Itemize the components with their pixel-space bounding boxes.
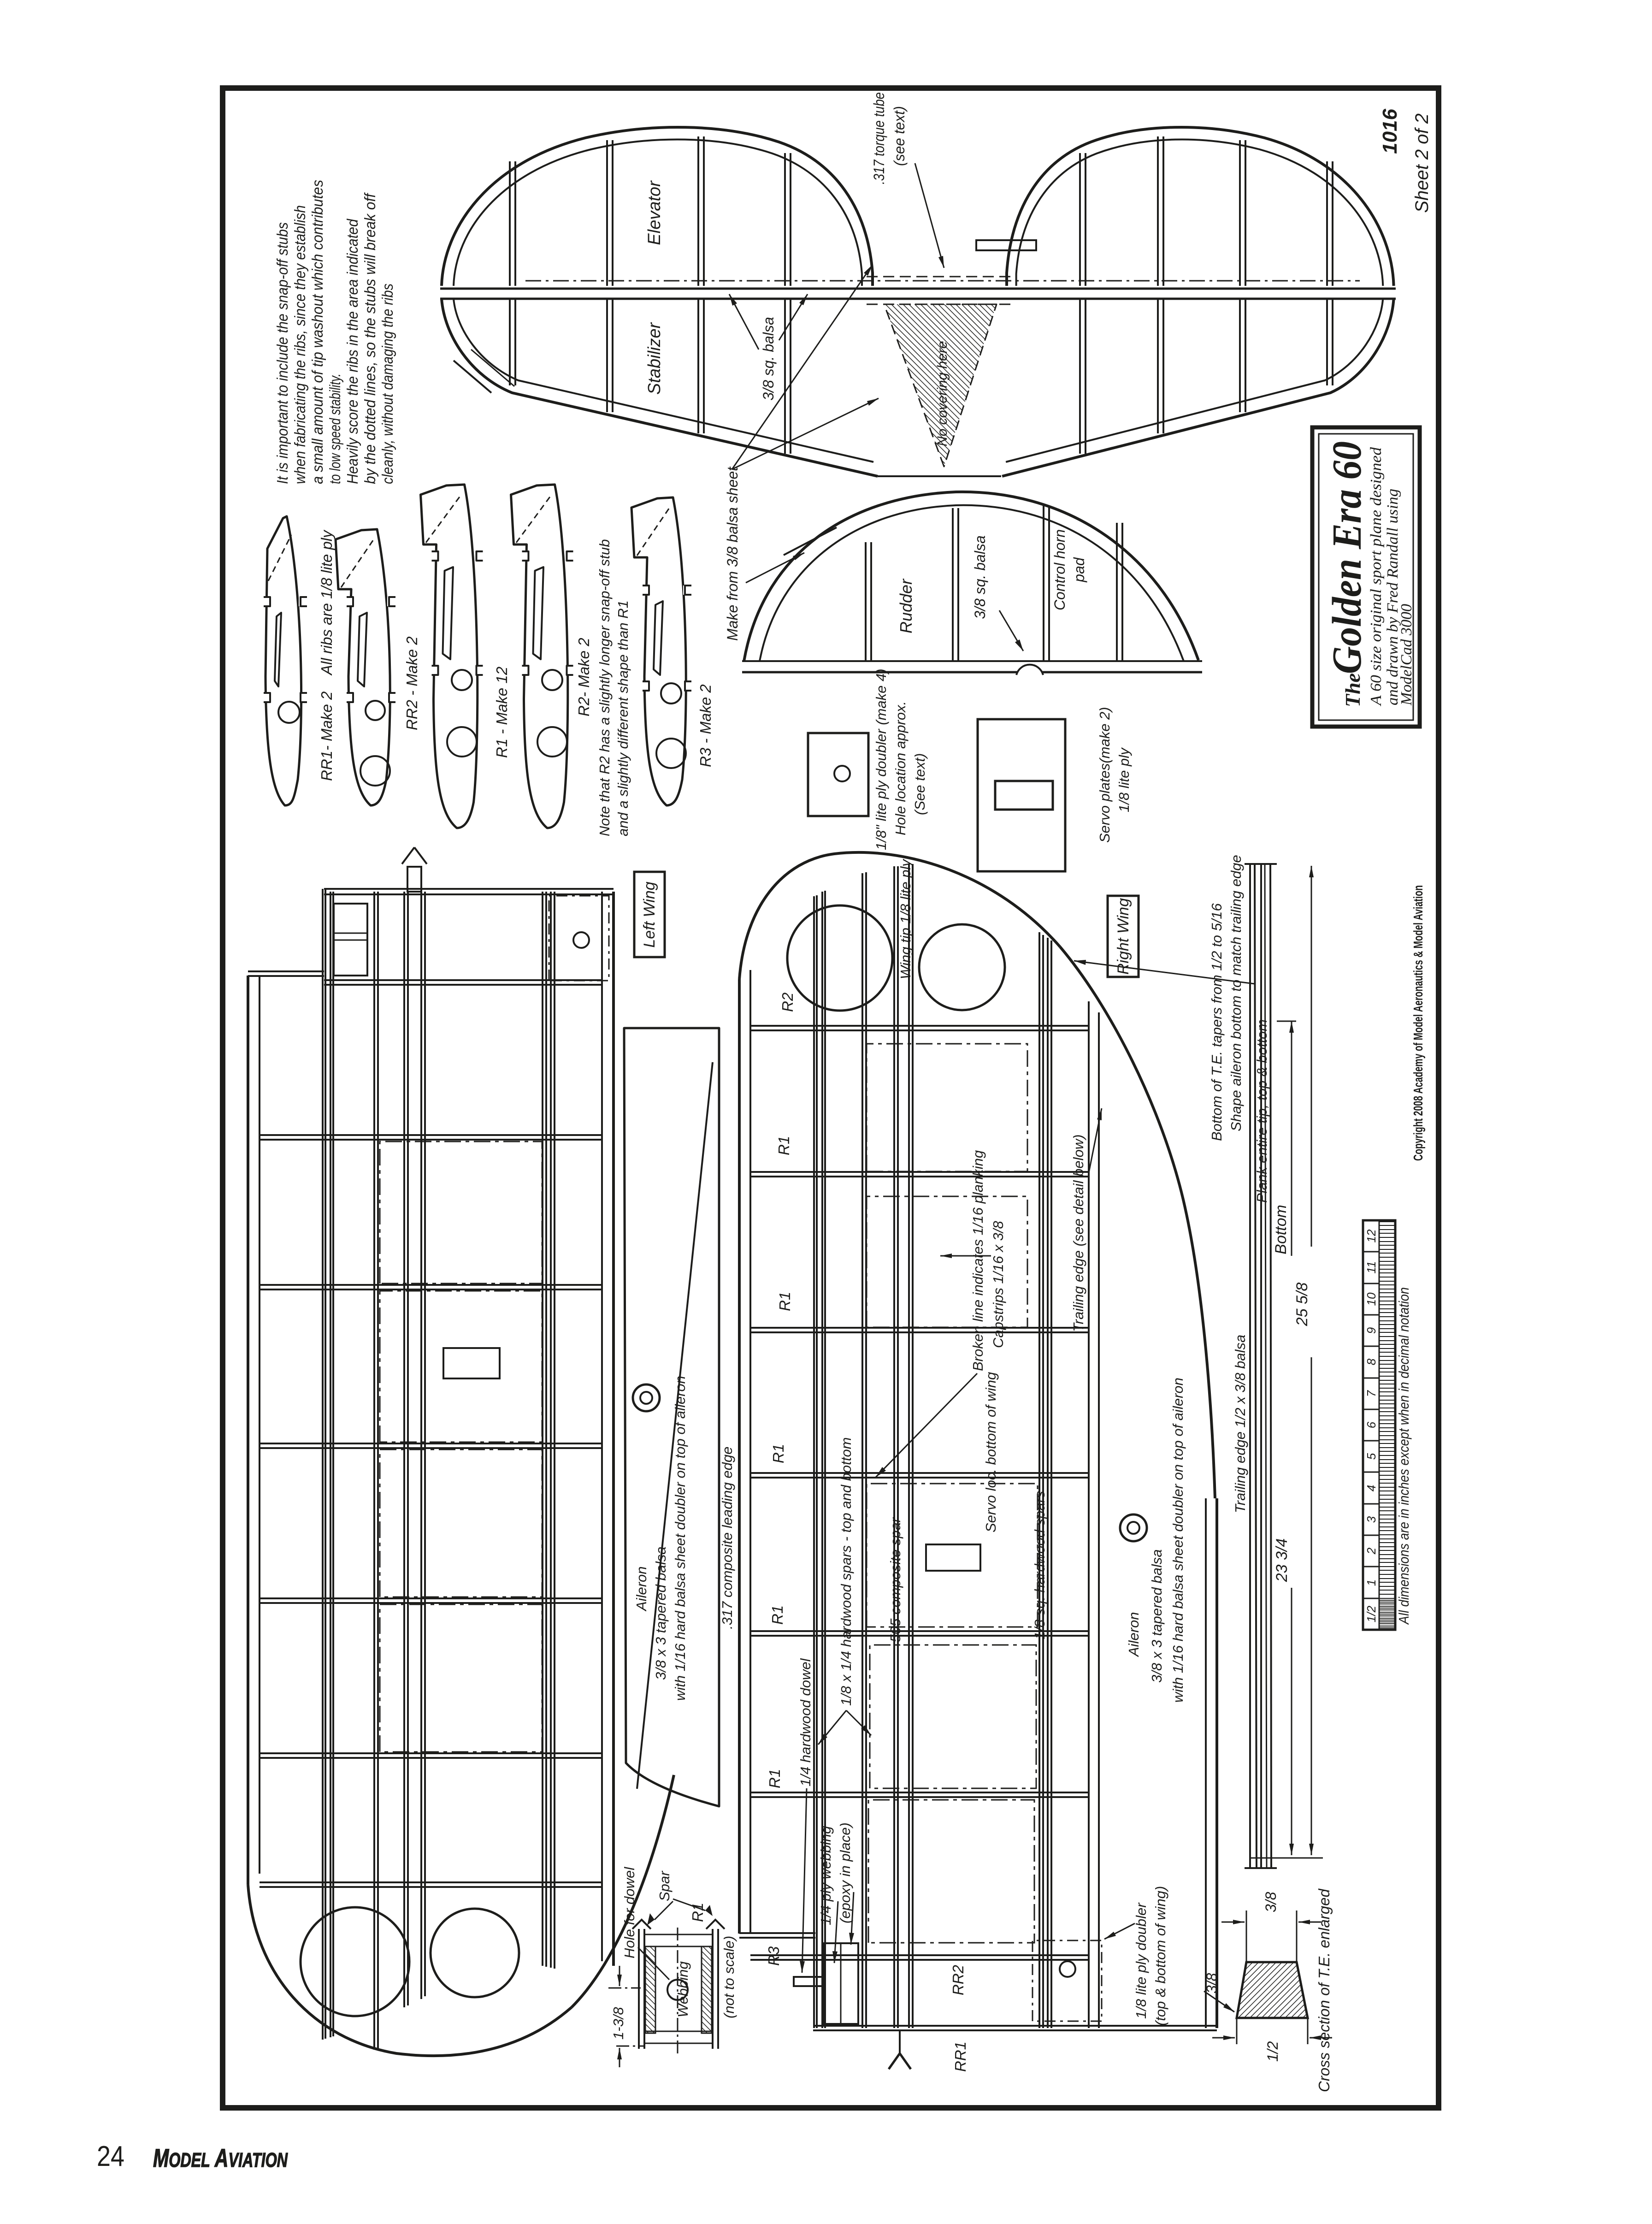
svg-text:Shape aileron bottom to match: Shape aileron bottom to match trailing e… — [1228, 855, 1244, 1131]
svg-text:.317 torque tube: .317 torque tube — [871, 92, 887, 184]
svg-text:4: 4 — [1364, 1485, 1378, 1491]
svg-text:Hole for dowel: Hole for dowel — [621, 1867, 637, 1958]
svg-text:All dimensions are in inches e: All dimensions are in inches except when… — [1396, 1287, 1412, 1625]
svg-text:(See text): (See text) — [912, 753, 928, 815]
svg-text:when fabricating the ribs, sin: when fabricating the ribs, since they es… — [291, 205, 308, 484]
svg-text:1: 1 — [1364, 1579, 1378, 1586]
svg-text:1/8 lite ply doubler: 1/8 lite ply doubler — [1133, 1902, 1149, 2019]
svg-text:by the dotted lines, so the st: by the dotted lines, so the stubs will b… — [361, 192, 378, 484]
svg-text:R2: R2 — [779, 993, 796, 1012]
svg-text:Left Wing: Left Wing — [641, 881, 658, 947]
svg-text:A 60 size original sport plane: A 60 size original sport plane designed — [1368, 447, 1385, 706]
svg-text:R1: R1 — [775, 1136, 792, 1155]
svg-text:R3 - Make 2: R3 - Make 2 — [697, 684, 714, 767]
svg-text:6: 6 — [1364, 1421, 1378, 1428]
svg-text:It is important to include the: It is important to include the snap-off … — [274, 222, 291, 484]
svg-text:Hole location approx.: Hole location approx. — [892, 701, 909, 835]
svg-text:R3: R3 — [765, 1946, 782, 1966]
svg-text:Sheet 2 of 2: Sheet 2 of 2 — [1412, 113, 1432, 213]
svg-text:Servo plates(make 2): Servo plates(make 2) — [1097, 707, 1113, 843]
svg-text:5: 5 — [1364, 1453, 1378, 1460]
svg-text:Servo loc. bottom of wing: Servo loc. bottom of wing — [983, 1372, 999, 1532]
svg-text:24: 24 — [97, 2141, 124, 2172]
svg-text:3/8: 3/8 — [1204, 1973, 1220, 1993]
svg-text:RR1: RR1 — [952, 2041, 969, 2072]
svg-text:Wing tip 1/8 lite ply: Wing tip 1/8 lite ply — [897, 858, 914, 979]
svg-text:All ribs are 1/8 lite ply: All ribs are 1/8 lite ply — [318, 529, 335, 676]
svg-text:The: The — [1341, 673, 1364, 707]
svg-text:10: 10 — [1364, 1292, 1378, 1306]
svg-text:25 5/8: 25 5/8 — [1293, 1283, 1311, 1327]
svg-text:Control horn: Control horn — [1051, 529, 1068, 610]
svg-text:with 1/16 hard balsa sheet dou: with 1/16 hard balsa sheet doubler on to… — [672, 1376, 688, 1701]
svg-text:a small amount of tip washout: a small amount of tip washout which cont… — [309, 180, 326, 484]
svg-text:1/8 x 1/4 hardwood spars - top: 1/8 x 1/4 hardwood spars - top and botto… — [838, 1437, 854, 1706]
svg-text:7: 7 — [1364, 1390, 1378, 1397]
svg-text:pad: pad — [1071, 557, 1087, 583]
svg-text:1/4 hardwood dowel: 1/4 hardwood dowel — [797, 1658, 814, 1786]
svg-text:9: 9 — [1364, 1327, 1378, 1334]
svg-text:Broken line indicates 1/16 pla: Broken line indicates 1/16 planking — [970, 1150, 986, 1371]
svg-text:8: 8 — [1364, 1358, 1378, 1365]
svg-text:23 3/4: 23 3/4 — [1273, 1538, 1291, 1583]
svg-text:Cross section of T.E. enlarged: Cross section of T.E. enlarged — [1316, 1888, 1333, 2092]
svg-text:Copyright 2008 Academy of Mode: Copyright 2008 Academy of Model Aeronaut… — [1411, 885, 1425, 1161]
svg-text:(not to scale): (not to scale) — [721, 1936, 737, 2018]
svg-text:3/8 x 3 tapered balsa: 3/8 x 3 tapered balsa — [653, 1546, 669, 1680]
svg-text:11: 11 — [1364, 1261, 1378, 1274]
svg-text:Aileron: Aileron — [1126, 1612, 1142, 1658]
svg-text:RR2 - Make 2: RR2 - Make 2 — [403, 636, 420, 730]
svg-text:1/8 sq. hardwood spars: 1/8 sq. hardwood spars — [1032, 1491, 1048, 1639]
svg-text:1016: 1016 — [1379, 108, 1401, 154]
svg-text:1/8 lite ply: 1/8 lite ply — [1116, 747, 1132, 812]
svg-text:1-3/8: 1-3/8 — [610, 2007, 626, 2040]
svg-text:Rudder: Rudder — [897, 578, 915, 633]
svg-text:Make from 3/8 balsa sheet: Make from 3/8 balsa sheet — [724, 467, 741, 641]
svg-text:ModelCad 3000: ModelCad 3000 — [1398, 604, 1415, 706]
svg-text:Heavily score the ribs in the: Heavily score the ribs in the area indic… — [344, 218, 361, 484]
svg-text:R1 - Make 12: R1 - Make 12 — [493, 667, 510, 758]
svg-text:.505 composite spar: .505 composite spar — [887, 1517, 903, 1646]
svg-text:Aileron: Aileron — [633, 1567, 649, 1612]
svg-text:and a slightly different shape: and a slightly different shape than R1 — [615, 600, 631, 836]
svg-text:Trailing edge 1/2 x 3/8 balsa: Trailing edge 1/2 x 3/8 balsa — [1232, 1335, 1248, 1513]
svg-text:3/8 sq. balsa: 3/8 sq. balsa — [760, 317, 777, 400]
svg-text:1/8" lite ply doubler (make 4): 1/8" lite ply doubler (make 4) — [873, 668, 889, 850]
svg-text:(epoxy in place): (epoxy in place) — [837, 1822, 853, 1923]
svg-text:Stabilizer: Stabilizer — [645, 322, 664, 395]
svg-text:R1: R1 — [769, 1605, 786, 1625]
svg-text:Bottom: Bottom — [1272, 1205, 1290, 1254]
svg-text:3/8: 3/8 — [1263, 1892, 1279, 1912]
svg-text:1/2: 1/2 — [1364, 1605, 1378, 1622]
svg-text:with 1/16 hard balsa sheet dou: with 1/16 hard balsa sheet doubler on to… — [1170, 1378, 1186, 1703]
svg-text:RR1- Make 2: RR1- Make 2 — [318, 692, 335, 781]
svg-text:Elevator: Elevator — [645, 180, 664, 245]
svg-text:Webbing: Webbing — [675, 1961, 691, 2017]
svg-text:Trailing edge (see detail belo: Trailing edge (see detail below) — [1070, 1135, 1086, 1332]
svg-text:3/8 x 3 tapered balsa: 3/8 x 3 tapered balsa — [1149, 1549, 1165, 1683]
svg-text:(see text): (see text) — [891, 106, 908, 166]
svg-text:2: 2 — [1364, 1547, 1378, 1555]
svg-text:Capstrips 1/16 x 3/8: Capstrips 1/16 x 3/8 — [990, 1221, 1006, 1348]
svg-text:Note that R2 has a slightly lo: Note that R2 has a slightly longer snap-… — [596, 539, 613, 836]
svg-text:1/2: 1/2 — [1264, 2041, 1281, 2062]
svg-text:.317 composite leading edge: .317 composite leading edge — [719, 1447, 735, 1629]
svg-text:R1: R1 — [770, 1444, 787, 1463]
svg-text:cleanly, without damaging the: cleanly, without damaging the ribs — [379, 284, 396, 484]
svg-text:to low speed stability.: to low speed stability. — [326, 373, 343, 484]
svg-text:R2- Make 2: R2- Make 2 — [575, 638, 592, 716]
svg-text:Spar: Spar — [656, 1870, 673, 1901]
svg-text:Right Wing: Right Wing — [1115, 898, 1132, 975]
svg-text:3: 3 — [1364, 1516, 1378, 1523]
svg-text:12: 12 — [1364, 1229, 1378, 1242]
svg-text:R1: R1 — [776, 1292, 793, 1311]
svg-text:1/4 ply webbing: 1/4 ply webbing — [818, 1826, 834, 1925]
svg-text:Bottom of T.E. tapers from 1/2: Bottom of T.E. tapers from 1/2 to 5/16 — [1209, 903, 1225, 1141]
svg-text:RR2: RR2 — [950, 1965, 967, 1995]
svg-text:(top & bottom of wing): (top & bottom of wing) — [1152, 1886, 1168, 2026]
svg-text:Golden Era 60: Golden Era 60 — [1324, 441, 1370, 674]
svg-text:3/8 sq. balsa: 3/8 sq. balsa — [972, 535, 988, 619]
svg-text:No covering here: No covering here — [935, 341, 950, 446]
svg-text:R1: R1 — [766, 1769, 783, 1788]
